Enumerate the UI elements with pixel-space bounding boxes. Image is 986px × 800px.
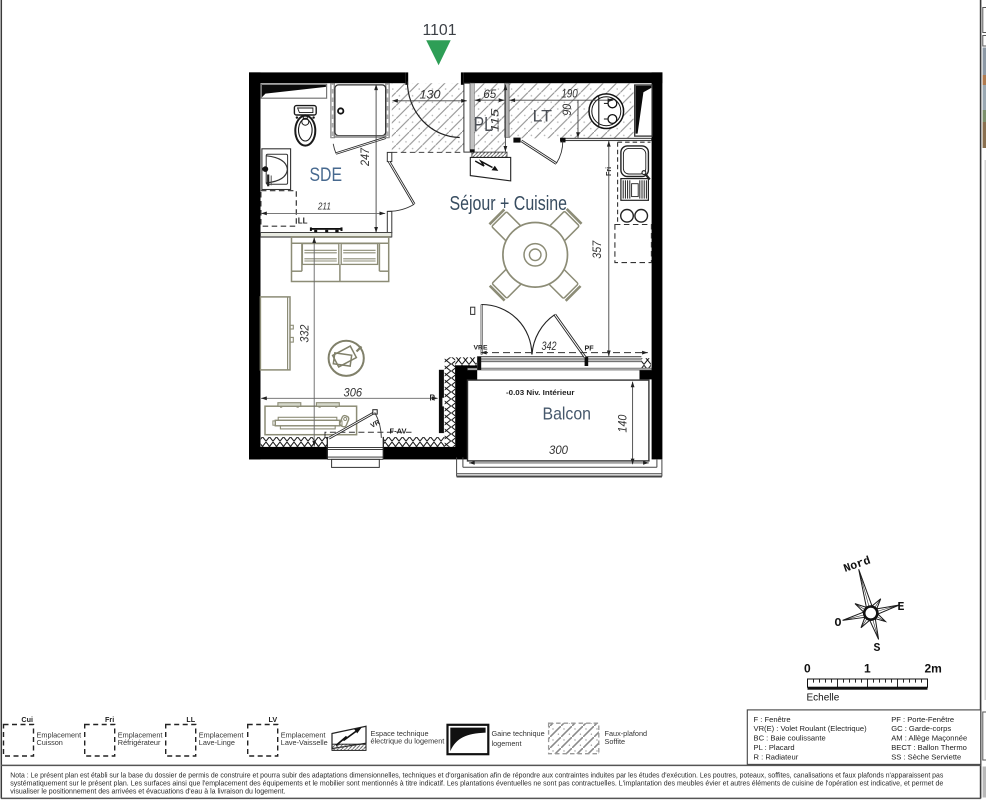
svg-text:300: 300 — [549, 445, 569, 457]
svg-text:Séjour + Cuisine: Séjour + Cuisine — [450, 193, 568, 215]
svg-text:VR(E) : Volet Roulant (Electri: VR(E) : Volet Roulant (Electrique) — [754, 724, 868, 733]
svg-text:140: 140 — [617, 414, 629, 433]
svg-text:Lave-Vaisselle: Lave-Vaisselle — [281, 738, 328, 747]
svg-text:90: 90 — [562, 103, 574, 116]
svg-text:1101: 1101 — [423, 22, 457, 39]
svg-text:211: 211 — [317, 202, 331, 213]
svg-text:LT: LT — [533, 106, 553, 125]
svg-text:SDE: SDE — [310, 164, 343, 186]
svg-text:PF: PF — [585, 343, 595, 352]
svg-text:LL: LL — [186, 715, 195, 724]
svg-text:PF : Porte-Fenêtre: PF : Porte-Fenêtre — [891, 715, 954, 724]
svg-text:électrique du logement: électrique du logement — [371, 736, 445, 745]
svg-text:190: 190 — [561, 89, 578, 101]
svg-text:Fri: Fri — [105, 715, 114, 724]
svg-text:Balcon: Balcon — [543, 404, 592, 424]
svg-text:logement: logement — [492, 739, 522, 748]
svg-text:R: R — [430, 393, 436, 402]
svg-text:F-AV: F-AV — [390, 426, 407, 435]
svg-text:306: 306 — [344, 387, 363, 399]
svg-text:VRE: VRE — [474, 344, 488, 351]
svg-text:visualiser le positionnement d: visualiser le positionnement des arrivée… — [10, 788, 285, 795]
svg-text:130: 130 — [420, 90, 442, 102]
svg-text:115: 115 — [490, 108, 502, 132]
svg-text:AM : Allège Maçonnée: AM : Allège Maçonnée — [891, 733, 967, 742]
svg-text:332: 332 — [299, 324, 311, 343]
svg-text:342: 342 — [542, 341, 557, 353]
svg-text:PL : Placard: PL : Placard — [754, 743, 795, 752]
svg-text:Cui: Cui — [21, 715, 33, 724]
svg-text:Cuisson: Cuisson — [37, 738, 63, 747]
svg-text:SS : Sèche Serviette: SS : Sèche Serviette — [891, 752, 961, 761]
svg-text:Echelle: Echelle — [807, 693, 840, 704]
svg-text:O: O — [835, 617, 842, 630]
svg-text:BC : Baie coulissante: BC : Baie coulissante — [754, 733, 826, 742]
svg-text:247: 247 — [360, 147, 372, 167]
svg-text:1: 1 — [864, 662, 871, 676]
svg-text:GC : Garde-corps: GC : Garde-corps — [891, 724, 951, 733]
svg-text:F : Fenêtre: F : Fenêtre — [754, 715, 791, 724]
svg-text:Nota : Le présent plan est éta: Nota : Le présent plan est établi sur la… — [10, 772, 943, 779]
svg-text:LL: LL — [298, 217, 308, 226]
svg-text:LV: LV — [269, 715, 278, 724]
svg-text:Gaine technique: Gaine technique — [492, 729, 545, 738]
svg-text:0: 0 — [804, 662, 811, 676]
svg-text:65: 65 — [483, 89, 497, 101]
svg-text:Lave-Linge: Lave-Linge — [199, 738, 235, 747]
svg-text:357: 357 — [592, 240, 604, 259]
svg-text:systématiquement sur le présen: systématiquement sur le présent plan. Le… — [10, 780, 943, 787]
svg-text:R : Radiateur: R : Radiateur — [754, 752, 799, 761]
svg-text:2m: 2m — [925, 662, 942, 676]
svg-text:Réfrigérateur: Réfrigérateur — [118, 738, 161, 747]
svg-text:E: E — [898, 601, 905, 614]
svg-text:-0.03 Niv. Intérieur: -0.03 Niv. Intérieur — [506, 388, 575, 397]
svg-text:BECT : Ballon Thermo: BECT : Ballon Thermo — [891, 743, 967, 752]
svg-text:Soffite: Soffite — [605, 737, 626, 746]
svg-text:S: S — [874, 642, 881, 655]
